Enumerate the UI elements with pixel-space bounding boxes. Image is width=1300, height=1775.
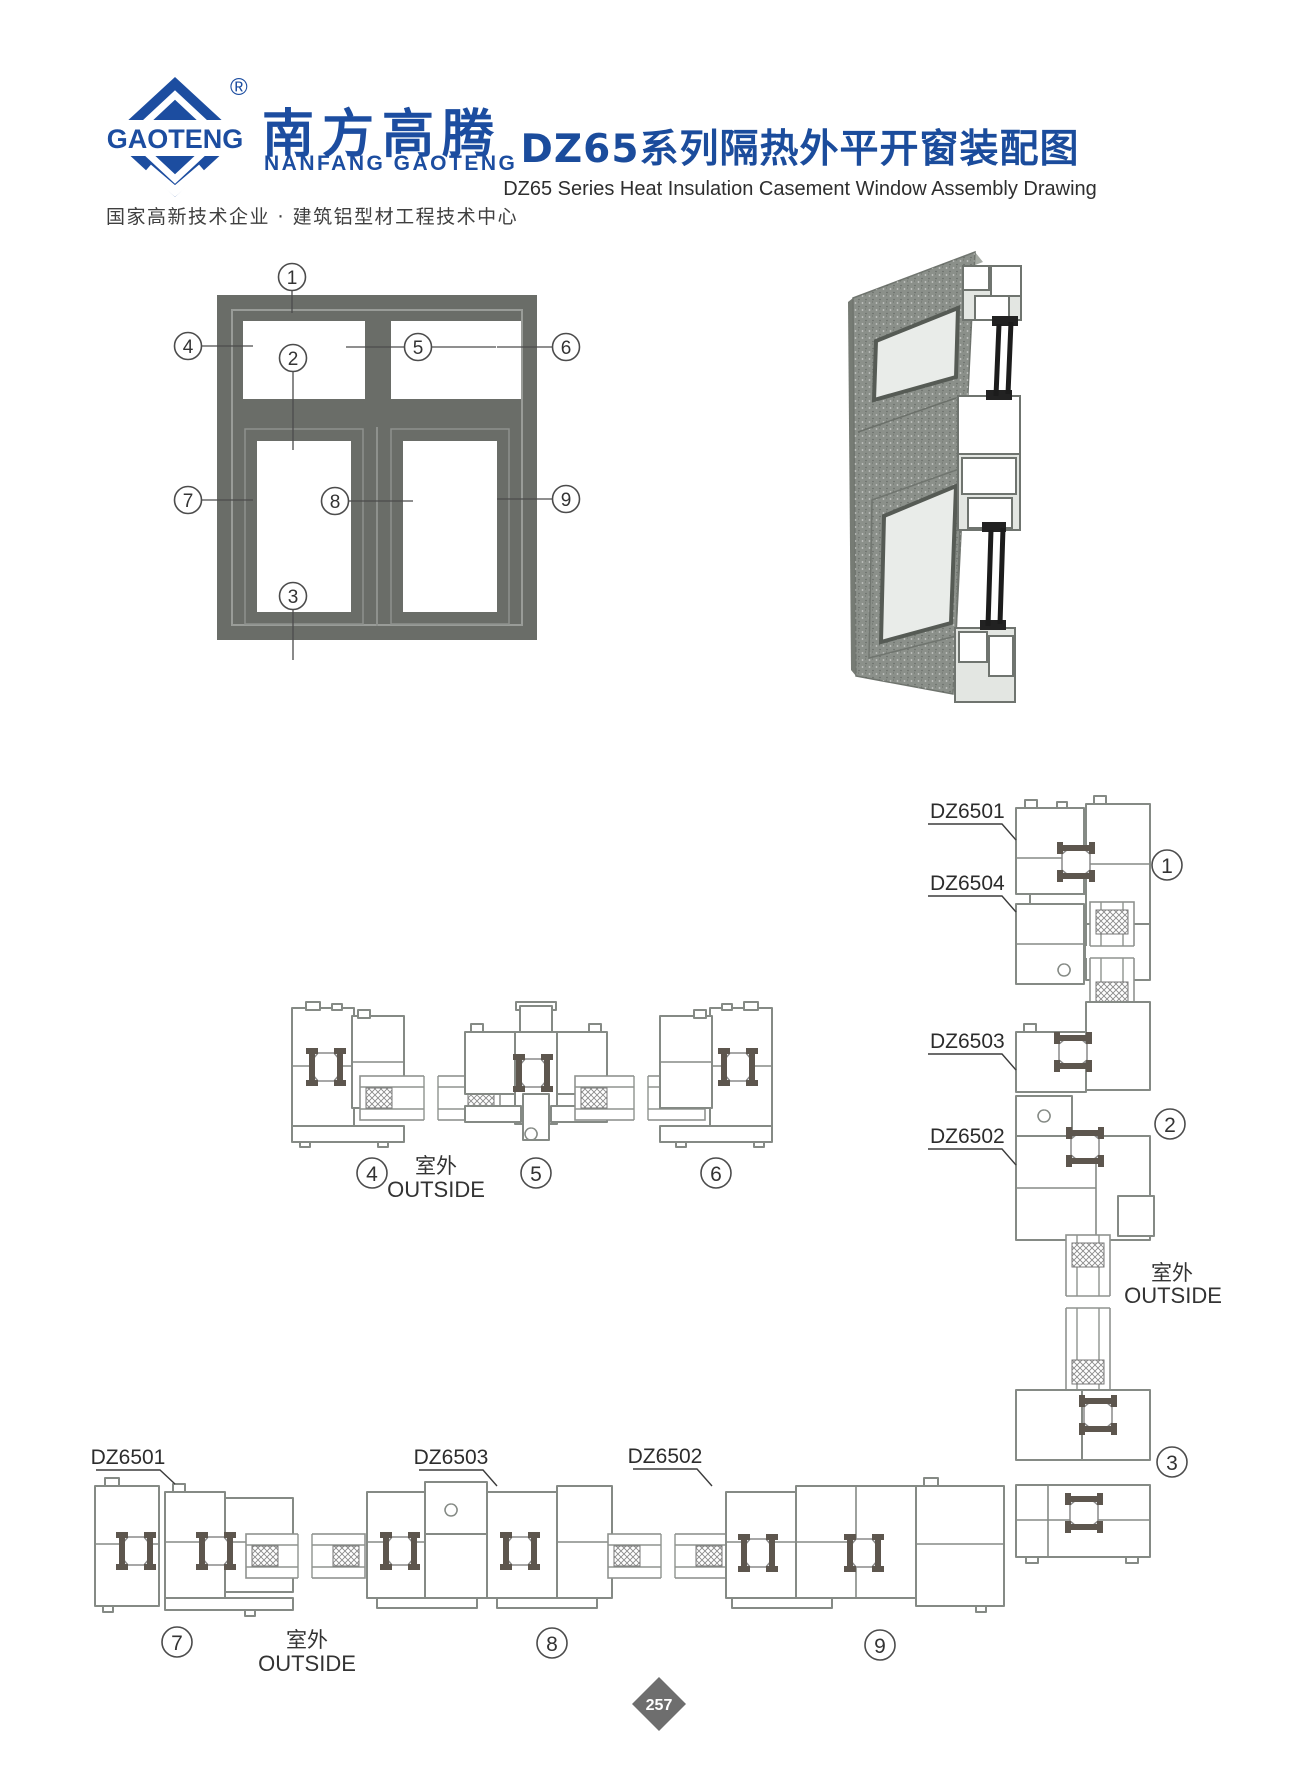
callout-3: 3	[280, 583, 307, 610]
profile-3d-render	[848, 252, 1021, 702]
svg-text:2: 2	[288, 349, 299, 370]
svg-text:9: 9	[561, 490, 572, 511]
callout-1: 1	[279, 264, 306, 291]
section-callout-6: 6	[701, 1158, 731, 1188]
section-callout-1: 1	[1152, 850, 1182, 880]
casement-pane-right	[403, 441, 497, 612]
svg-text:1: 1	[1161, 855, 1173, 878]
callout-2: 2	[280, 345, 307, 372]
svg-text:6: 6	[710, 1163, 722, 1186]
section-callout-8: 8	[537, 1628, 567, 1658]
catalog-page: GAOTENG ® 南方高腾 NANFANG GAOTENG 国家高新技术企业 …	[0, 0, 1300, 1775]
svg-text:7: 7	[171, 1632, 183, 1655]
middle-section-band: 4 5 6 室外 OUTSIDE	[292, 1002, 772, 1202]
label-dz6503-bottom: DZ6503	[414, 1446, 489, 1469]
label-dz6501-right: DZ6501	[930, 800, 1005, 823]
callout-4: 4	[175, 333, 202, 360]
assembly-drawing-canvas: 1 2 3 4 5 6 7 8 9	[0, 0, 1300, 1775]
label-dz6503-right: DZ6503	[930, 1030, 1005, 1053]
vertical-section-column: DZ6501 DZ6504 DZ6503 DZ6502 1 2 3 室外 OUT…	[928, 796, 1222, 1563]
callout-9: 9	[553, 486, 580, 513]
callout-8: 8	[322, 488, 349, 515]
svg-text:5: 5	[413, 338, 424, 359]
callout-5: 5	[405, 334, 432, 361]
section-callout-2: 2	[1155, 1109, 1185, 1139]
section-profile-6	[660, 1002, 772, 1147]
section-profile-9	[726, 1478, 1004, 1612]
svg-text:2: 2	[1164, 1114, 1176, 1137]
glass-unit-horizontal-4	[608, 1532, 728, 1580]
section-callout-9: 9	[865, 1630, 895, 1660]
label-dz6502-bottom: DZ6502	[628, 1445, 703, 1468]
svg-text:OUTSIDE: OUTSIDE	[1124, 1283, 1222, 1308]
section-callout-3: 3	[1157, 1447, 1187, 1477]
callout-7: 7	[175, 487, 202, 514]
casement-pane-left	[257, 441, 351, 612]
svg-text:1: 1	[287, 268, 298, 289]
transom-pane-right	[391, 321, 521, 399]
section-callout-5: 5	[521, 1158, 551, 1188]
section-callout-4: 4	[357, 1158, 387, 1188]
svg-text:7: 7	[183, 491, 194, 512]
svg-text:3: 3	[1166, 1452, 1178, 1475]
svg-text:9: 9	[874, 1635, 886, 1658]
svg-text:8: 8	[330, 492, 341, 513]
svg-text:6: 6	[561, 338, 572, 359]
section-profile-4	[292, 1002, 404, 1147]
glass-unit-vertical-1	[1086, 902, 1138, 1015]
page-number-diamond: 257	[632, 1677, 686, 1731]
svg-text:室外: 室外	[286, 1628, 328, 1652]
callout-6: 6	[553, 334, 580, 361]
svg-text:室外: 室外	[1151, 1261, 1193, 1285]
svg-text:OUTSIDE: OUTSIDE	[258, 1651, 356, 1676]
svg-text:室外: 室外	[415, 1154, 457, 1178]
glass-unit-vertical-2	[1062, 1235, 1114, 1395]
page-number: 257	[646, 1697, 673, 1714]
label-dz6504-right: DZ6504	[930, 872, 1005, 895]
outside-label-right: 室外 OUTSIDE	[1124, 1261, 1222, 1308]
svg-text:4: 4	[366, 1163, 378, 1186]
glass-unit-horizontal-3	[246, 1532, 365, 1580]
bottom-section-band: DZ6501 DZ6503 DZ6502 7 8 9 室外 OUTSIDE	[91, 1445, 1004, 1676]
svg-text:5: 5	[530, 1163, 542, 1186]
right-column-labels: DZ6501 DZ6504 DZ6503 DZ6502	[928, 800, 1016, 1165]
section-profile-8	[367, 1482, 612, 1608]
outside-label-middle: 室外 OUTSIDE	[387, 1154, 485, 1202]
section-callout-7: 7	[162, 1627, 192, 1657]
svg-text:4: 4	[183, 337, 194, 358]
middle-band-callouts: 4 5 6 室外 OUTSIDE	[357, 1154, 731, 1202]
label-dz6502-right: DZ6502	[930, 1125, 1005, 1148]
section-profile-transom	[1016, 1002, 1154, 1240]
section-profile-sill	[1016, 1390, 1150, 1563]
outside-label-bottom: 室外 OUTSIDE	[258, 1628, 356, 1676]
svg-text:3: 3	[288, 587, 299, 608]
svg-text:8: 8	[546, 1633, 558, 1656]
label-dz6501-bottom: DZ6501	[91, 1446, 166, 1469]
svg-text:OUTSIDE: OUTSIDE	[387, 1177, 485, 1202]
